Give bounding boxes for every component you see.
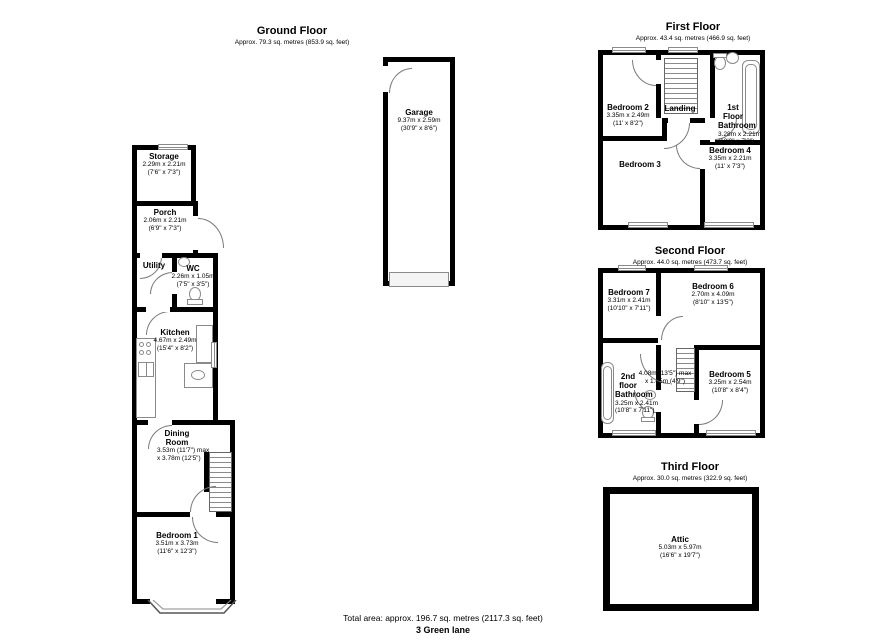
window bbox=[704, 222, 754, 228]
floor-area-text: Approx. 44.0 sq. metres (473.7 sq. feet) bbox=[590, 259, 790, 266]
room-name: Landing bbox=[658, 104, 702, 113]
room-label-storage: Storage 2.29m x 2.21m (7'6" x 7'3") bbox=[136, 152, 192, 177]
wall-segment bbox=[694, 345, 765, 350]
floor-title-text: Second Floor bbox=[590, 245, 790, 257]
room-dims-imperial: (11' x 7'3") bbox=[702, 163, 758, 171]
floor-area-text: Approx. 43.4 sq. metres (466.9 sq. feet) bbox=[593, 35, 793, 42]
room-dims-imperial: (10'10" x 7'11") bbox=[600, 305, 658, 313]
room-label-wc: WC 2.26m x 1.05m (7'5" x 3'5") bbox=[168, 264, 218, 289]
door-opening bbox=[190, 512, 216, 517]
room-label-bedroom7: Bedroom 7 3.31m x 2.41m (10'10" x 7'11") bbox=[600, 288, 658, 313]
sink-icon bbox=[191, 370, 205, 380]
door-opening bbox=[383, 66, 388, 92]
floor-title-text: First Floor bbox=[593, 21, 793, 33]
room-label-kitchen: Kitchen 4.67m x 2.49m (15'4" x 8'2") bbox=[136, 328, 214, 353]
room-dims-imperial: x 1.45m (4'9") bbox=[634, 378, 696, 386]
room-dims-metric: 3.35m x 2.49m bbox=[600, 112, 656, 120]
floor-title-text: Ground Floor bbox=[192, 25, 392, 37]
window bbox=[158, 144, 188, 150]
room-name: Storage bbox=[136, 152, 192, 161]
room-dims-metric: 9.37m x 2.59m bbox=[381, 117, 457, 125]
room-dims-metric: 5.03m x 5.97m bbox=[640, 544, 720, 552]
door-opening bbox=[140, 253, 162, 258]
room-dims-metric: 4.67m x 2.49m bbox=[136, 337, 214, 345]
room-dims-imperial: (10'8" x 7'11") bbox=[615, 407, 641, 415]
room-label-bedroom4: Bedroom 4 3.35m x 2.21m (11' x 7'3") bbox=[702, 146, 758, 171]
room-dims-metric: 3.25m x 2.54m bbox=[700, 379, 760, 387]
kitchen-sink-icon bbox=[138, 362, 154, 377]
room-dims-metric: 2.29m x 2.21m bbox=[136, 161, 192, 169]
window bbox=[706, 430, 756, 436]
room-dims-imperial: x 3.78m (12'5") bbox=[157, 455, 197, 463]
room-dims-metric: 2.70m x 4.09m bbox=[682, 291, 744, 299]
second-floor-title: Second Floor Approx. 44.0 sq. metres (47… bbox=[590, 245, 790, 266]
door-opening bbox=[193, 216, 198, 250]
room-name: Porch bbox=[138, 208, 192, 217]
room-dims-imperial: (8'10" x 13'5") bbox=[682, 299, 744, 307]
room-dims-imperial: (10'8" x 8'4") bbox=[700, 387, 760, 395]
room-label-garage: Garage 9.37m x 2.59m (30'9" x 8'6") bbox=[381, 108, 457, 133]
wall-segment bbox=[598, 136, 662, 141]
third-floor-title: Third Floor Approx. 30.0 sq. metres (322… bbox=[590, 461, 790, 482]
room-label-landing: Landing bbox=[658, 104, 702, 113]
room-name: Dining Room bbox=[157, 429, 197, 447]
toilet-icon bbox=[187, 299, 203, 305]
room-name: Bedroom 1 bbox=[149, 531, 205, 540]
room-name: Kitchen bbox=[136, 328, 214, 337]
toilet-icon bbox=[641, 417, 655, 422]
room-label-bedroom3: Bedroom 3 bbox=[612, 160, 668, 169]
room-name: 1st Floor Bathroom bbox=[718, 103, 748, 131]
plan-footer: Total area: approx. 196.7 sq. metres (21… bbox=[0, 613, 886, 635]
toilet-icon bbox=[714, 56, 726, 70]
room-dims-imperial: (7'5" x 3'5") bbox=[168, 281, 218, 289]
room-dims-metric: 4.08m (13'5") max bbox=[634, 370, 696, 378]
garage-door bbox=[389, 272, 449, 287]
window bbox=[628, 222, 668, 228]
room-name: Bedroom 3 bbox=[612, 160, 668, 169]
floor-area-text: Approx. 79.3 sq. metres (853.9 sq. feet) bbox=[192, 39, 392, 46]
room-dims-imperial: (30'9" x 8'6") bbox=[381, 125, 457, 133]
floor-area-text: Approx. 30.0 sq. metres (322.9 sq. feet) bbox=[590, 475, 790, 482]
room-label-attic: Attic 5.03m x 5.97m (16'6" x 19'7") bbox=[640, 535, 720, 560]
ground-floor-title: Ground Floor Approx. 79.3 sq. metres (85… bbox=[192, 25, 392, 46]
room-label-bedroom2: Bedroom 2 3.35m x 2.49m (11' x 8'2") bbox=[600, 103, 656, 128]
room-label-dining: Dining Room 3.53m (11'7") max x 3.78m (1… bbox=[157, 429, 197, 463]
room-dims-metric: 3.51m x 3.73m bbox=[149, 540, 205, 548]
door-arc bbox=[198, 218, 224, 248]
window bbox=[668, 47, 698, 53]
room-dims-imperial: (16'6" x 19'7") bbox=[640, 552, 720, 560]
room-name: Bedroom 7 bbox=[600, 288, 658, 297]
address-text: 3 Green lane bbox=[0, 625, 886, 635]
room-dims-imperial: (7'6" x 7'3") bbox=[136, 169, 192, 177]
window bbox=[612, 430, 656, 436]
floor-title-text: Third Floor bbox=[590, 461, 790, 473]
hall-dims-label: 4.08m (13'5") max x 1.45m (4'9") bbox=[634, 370, 696, 386]
room-name: Garage bbox=[381, 108, 457, 117]
door-opening bbox=[656, 60, 661, 84]
room-dims-imperial: (11'6" x 12'3") bbox=[149, 548, 205, 556]
room-label-first-bathroom: 1st Floor Bathroom 3.28m x 2.21m (10'9" … bbox=[718, 103, 748, 146]
room-dims-metric: 3.31m x 2.41m bbox=[600, 297, 658, 305]
room-name: Bedroom 2 bbox=[600, 103, 656, 112]
room-dims-metric: 3.35m x 2.21m bbox=[702, 155, 758, 163]
room-dims-metric: 2.26m x 1.05m bbox=[168, 273, 218, 281]
door-opening bbox=[668, 118, 690, 123]
window bbox=[612, 47, 646, 53]
room-dims-imperial: (6'9" x 7'3") bbox=[138, 225, 192, 233]
room-label-bedroom1: Bedroom 1 3.51m x 3.73m (11'6" x 12'3") bbox=[149, 531, 205, 556]
room-dims-metric: 3.53m (11'7") max bbox=[157, 447, 197, 455]
wall-segment bbox=[598, 338, 658, 343]
room-label-second-bathroom: 2nd floor Bathroom 3.25m x 2.41m (10'8" … bbox=[615, 372, 641, 415]
room-name: Attic bbox=[640, 535, 720, 544]
sink-icon bbox=[726, 52, 739, 64]
first-floor-title: First Floor Approx. 43.4 sq. metres (466… bbox=[593, 21, 793, 42]
bedroom1-room bbox=[132, 512, 235, 604]
room-name: Bedroom 6 bbox=[682, 282, 744, 291]
toilet-icon bbox=[713, 53, 727, 58]
room-dims-metric: 3.25m x 2.41m bbox=[615, 400, 641, 408]
room-dims-metric: 3.28m x 2.21m bbox=[718, 131, 748, 139]
bathtub-icon bbox=[603, 366, 612, 420]
room-name: 2nd floor Bathroom bbox=[615, 372, 641, 400]
room-name: WC bbox=[168, 264, 218, 273]
total-area-text: Total area: approx. 196.7 sq. metres (21… bbox=[0, 613, 886, 623]
room-dims-metric: 2.06m x 2.21m bbox=[138, 217, 192, 225]
room-label-bedroom6: Bedroom 6 2.70m x 4.09m (8'10" x 13'5") bbox=[682, 282, 744, 307]
room-dims-imperial: (15'4" x 8'2") bbox=[136, 345, 214, 353]
door-opening bbox=[710, 118, 715, 142]
floorplan-canvas: Ground Floor Approx. 79.3 sq. metres (85… bbox=[0, 0, 886, 644]
room-label-bedroom5: Bedroom 5 3.25m x 2.54m (10'8" x 8'4") bbox=[700, 370, 760, 395]
room-dims-imperial: (11' x 8'2") bbox=[600, 120, 656, 128]
room-label-porch: Porch 2.06m x 2.21m (6'9" x 7'3") bbox=[138, 208, 192, 233]
door-opening bbox=[148, 420, 172, 425]
door-opening bbox=[656, 316, 661, 338]
room-name: Bedroom 5 bbox=[700, 370, 760, 379]
door-opening bbox=[694, 400, 699, 424]
room-dims-imperial: (10'9" x 7'3") bbox=[718, 138, 748, 146]
door-opening bbox=[146, 307, 170, 312]
room-name: Bedroom 4 bbox=[702, 146, 758, 155]
